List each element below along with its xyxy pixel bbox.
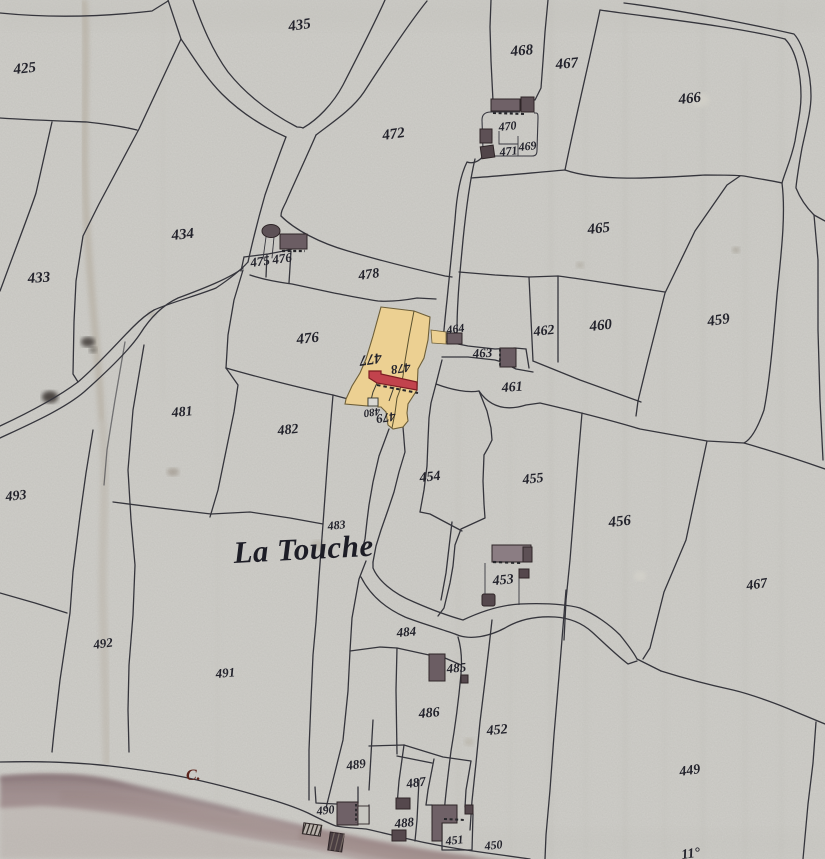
- svg-text:461: 461: [500, 380, 523, 396]
- svg-text:434: 434: [170, 226, 196, 244]
- svg-text:481: 481: [170, 404, 193, 421]
- svg-text:476: 476: [295, 330, 321, 348]
- svg-text:492: 492: [91, 634, 114, 652]
- svg-text:488: 488: [393, 814, 415, 831]
- svg-text:491: 491: [214, 664, 236, 681]
- svg-text:454: 454: [418, 469, 441, 486]
- svg-text:482: 482: [276, 422, 299, 439]
- svg-text:475: 475: [248, 252, 271, 270]
- svg-text:464: 464: [444, 321, 465, 338]
- svg-text:433: 433: [26, 269, 51, 287]
- svg-text:459: 459: [705, 311, 731, 330]
- svg-text:460: 460: [588, 317, 614, 335]
- svg-text:486: 486: [417, 705, 440, 722]
- svg-text:435: 435: [286, 16, 312, 35]
- svg-text:487: 487: [404, 773, 427, 791]
- svg-text:478: 478: [390, 360, 413, 378]
- svg-text:485: 485: [445, 659, 467, 676]
- svg-text:489: 489: [344, 755, 367, 773]
- svg-text:450: 450: [483, 837, 503, 853]
- svg-text:465: 465: [586, 220, 612, 238]
- svg-text:472: 472: [380, 125, 406, 144]
- svg-text:466: 466: [677, 90, 703, 108]
- svg-text:449: 449: [677, 762, 701, 780]
- svg-text:425: 425: [12, 60, 38, 78]
- svg-text:468: 468: [509, 42, 534, 60]
- svg-text:456: 456: [607, 513, 633, 531]
- svg-text:462: 462: [532, 323, 555, 340]
- svg-text:476: 476: [270, 249, 293, 267]
- svg-text:477: 477: [358, 349, 384, 368]
- svg-text:451: 451: [444, 832, 464, 848]
- svg-text:470: 470: [497, 118, 517, 134]
- svg-text:452: 452: [485, 722, 508, 739]
- svg-text:493: 493: [4, 488, 27, 505]
- svg-text:479: 479: [375, 409, 398, 427]
- svg-text:11°: 11°: [680, 845, 701, 859]
- svg-text:455: 455: [521, 471, 544, 488]
- svg-text:490: 490: [315, 802, 335, 818]
- svg-text:478: 478: [356, 266, 380, 284]
- svg-text:453: 453: [491, 572, 514, 589]
- svg-text:463: 463: [471, 345, 493, 361]
- svg-text:467: 467: [744, 576, 769, 594]
- svg-text:La Touche: La Touche: [232, 528, 375, 570]
- svg-text:469: 469: [517, 138, 537, 154]
- svg-text:467: 467: [554, 55, 579, 73]
- svg-text:484: 484: [395, 623, 417, 640]
- svg-text:C.: C.: [186, 767, 201, 784]
- svg-text:471: 471: [498, 143, 518, 159]
